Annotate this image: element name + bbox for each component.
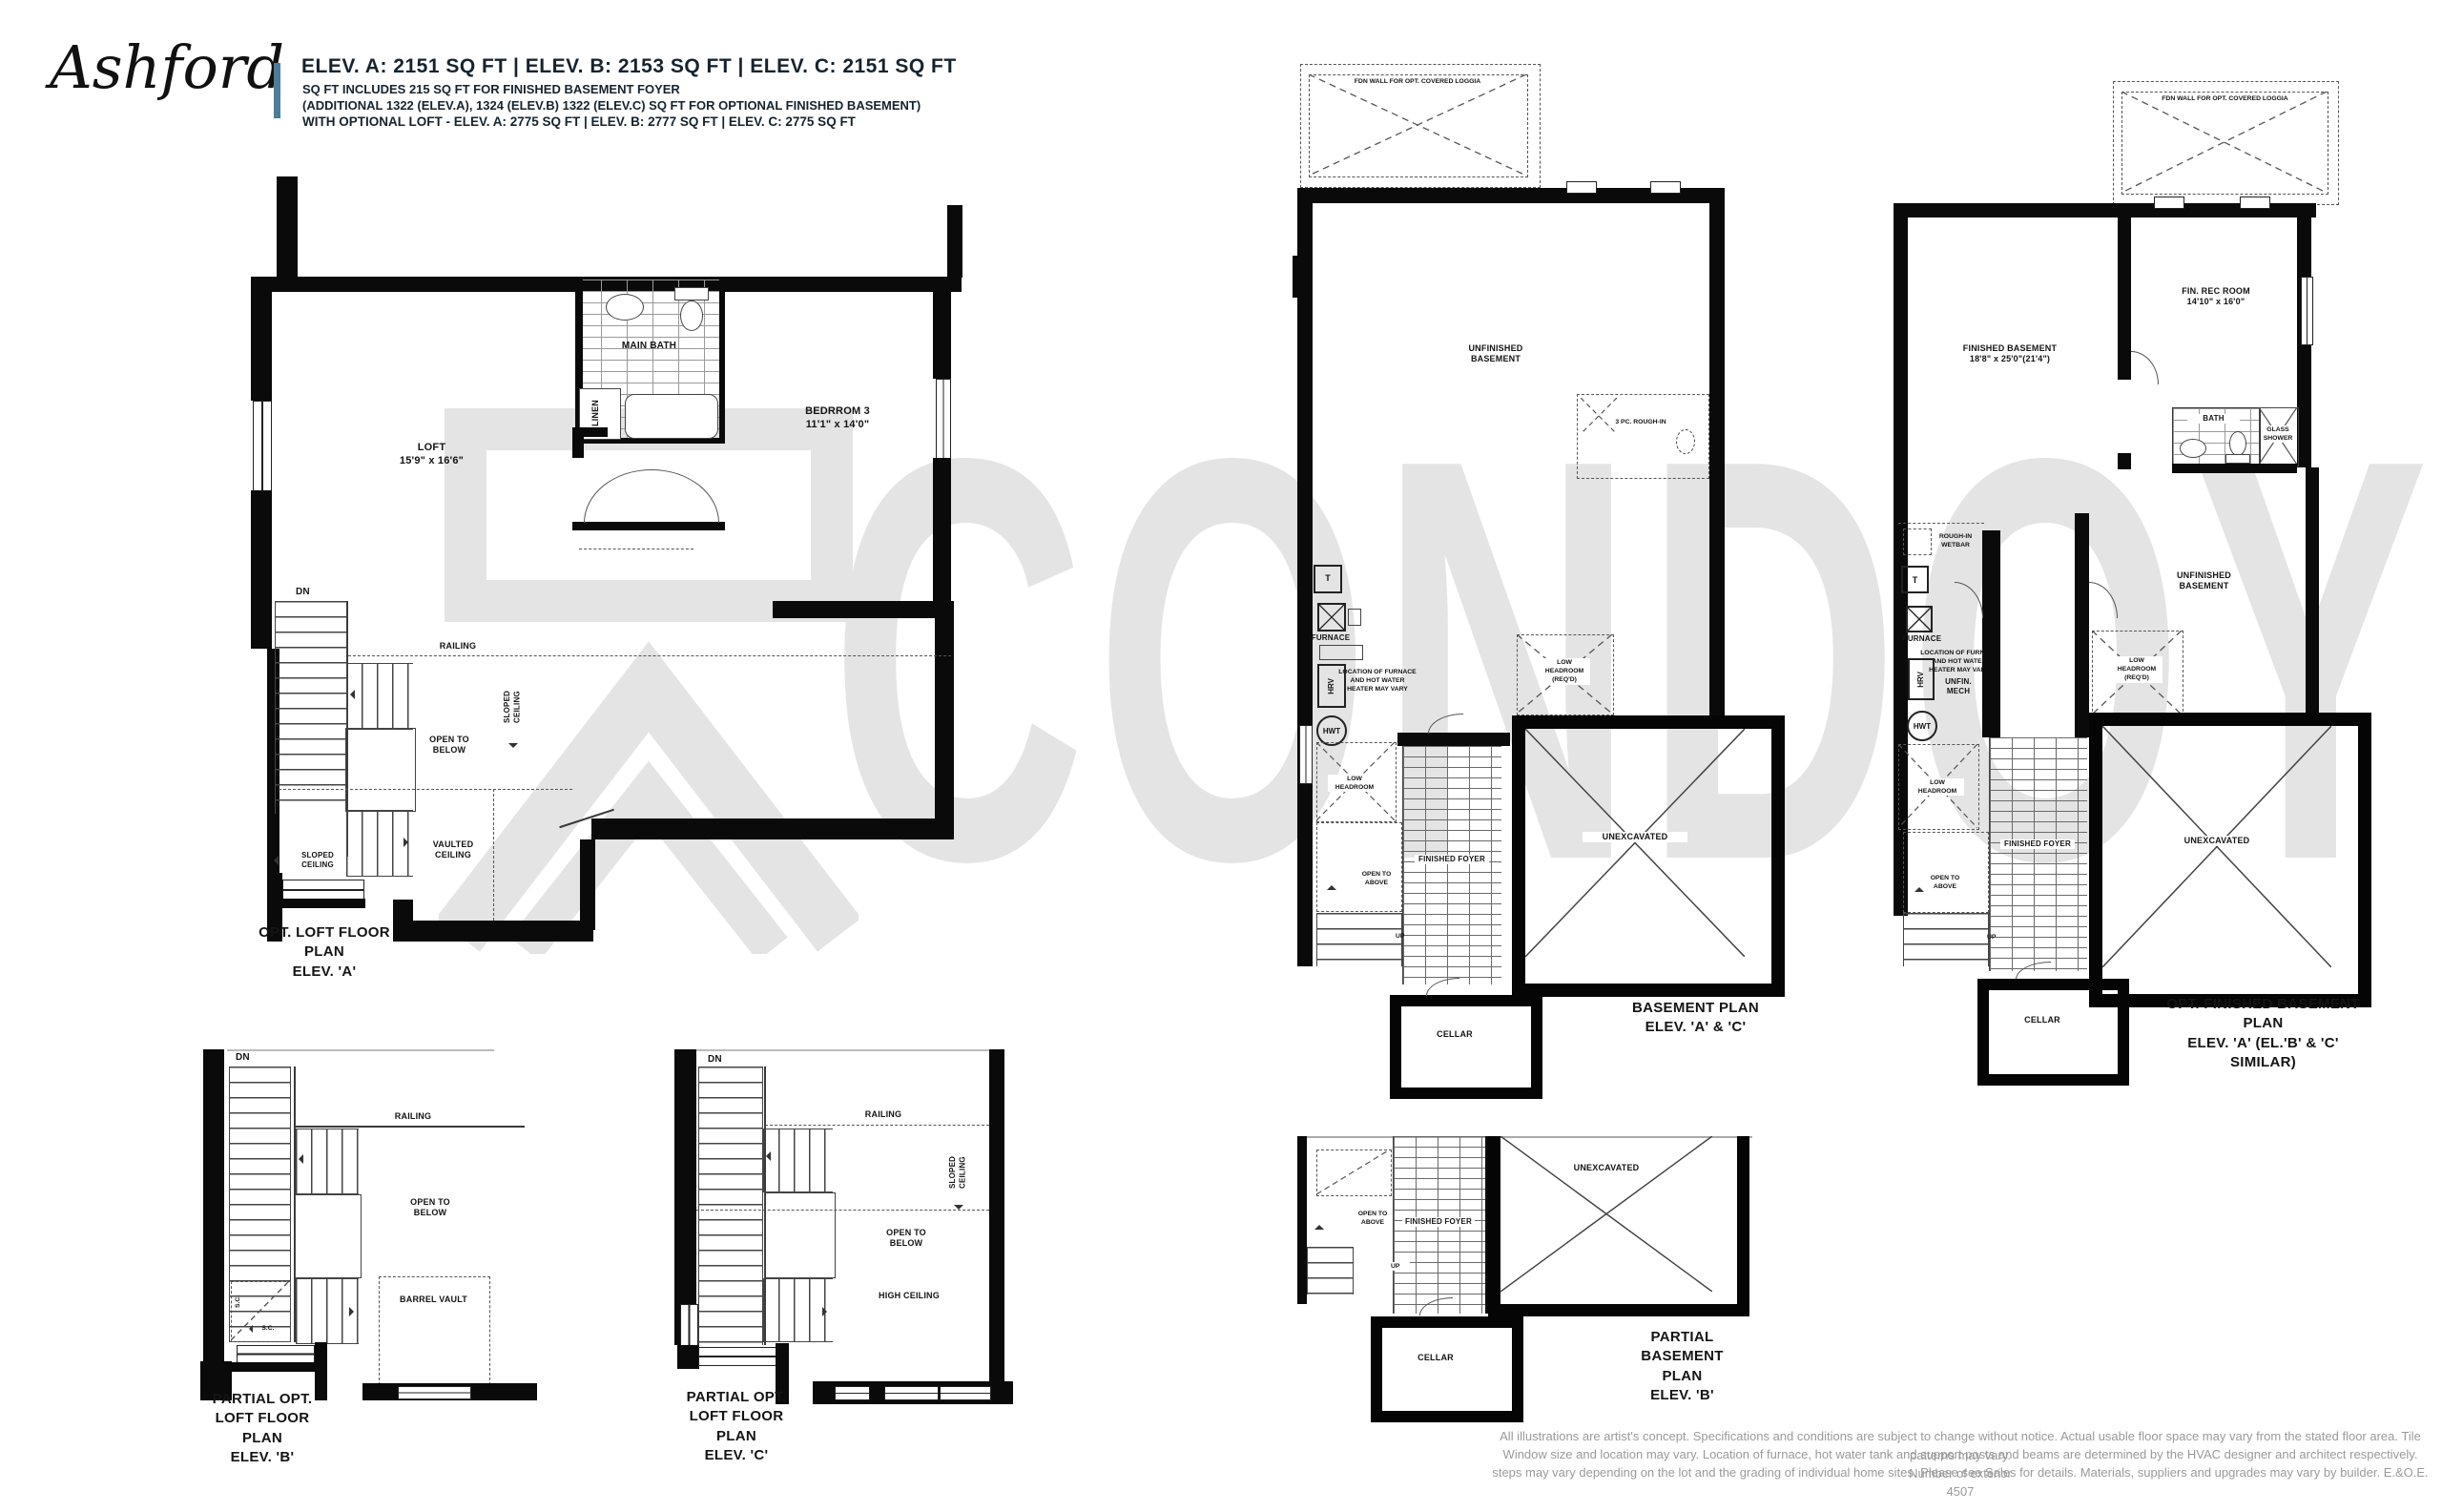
stair-arrow-icon: [766, 1151, 771, 1161]
stair-flight: [1903, 913, 1989, 966]
ceiling-break-line: [696, 1210, 989, 1211]
up-label: UP: [1987, 933, 2006, 942]
up-label: UP: [1396, 932, 1415, 941]
hwt-circle: HWT: [1907, 711, 1937, 741]
stair-flight: [763, 1129, 833, 1192]
bedroom3-name: BEDRROM 3: [805, 405, 870, 417]
header-sqft-line3: (ADDITIONAL 1322 (ELEV.A), 1324 (ELEV.B)…: [302, 98, 921, 113]
sloped-ceiling-v-label: SLOPED CEILING: [503, 674, 524, 739]
caption-line3: ELEV. 'B': [1650, 1387, 1714, 1403]
toilet-tank-icon: [674, 287, 709, 300]
header-sqft-line1: ELEV. A: 2151 SQ FT | ELEV. B: 2153 SQ F…: [301, 55, 957, 78]
wall-segment: [572, 522, 725, 530]
door-arc: [1955, 582, 1983, 618]
wall-segment: [2075, 513, 2089, 737]
wall-segment: [2306, 467, 2319, 713]
sink-icon: [2180, 439, 2206, 458]
loft-name: LOFT: [418, 442, 446, 453]
wall-segment: [933, 458, 951, 615]
wall-segment: [1297, 188, 1313, 966]
cellar-label: CELLAR: [1418, 1029, 1491, 1040]
wall-segment: [2118, 217, 2131, 380]
loft-dims: 15'9" x 16'6": [400, 455, 464, 466]
door-arc: [1428, 714, 1463, 734]
wall-segment: [394, 921, 593, 942]
cut-line: [696, 1049, 989, 1051]
sc-horizontal-label: S.C.: [255, 1324, 281, 1333]
caption-line1: BASEMENT PLAN: [1632, 1000, 1759, 1016]
fin-rec-room-dims: 14'10" x 16'0": [2187, 297, 2245, 306]
plan-caption: OPT. FINISHED BASEMENT PLAN ELEV. 'A' (E…: [2161, 995, 2366, 1072]
loggia-label: FDN WALL FOR OPT. COVERED LOGGIA: [2137, 94, 2313, 103]
unexcavated-label: UNEXCAVATED: [2164, 836, 2269, 846]
furnace-icon: [1906, 606, 1933, 632]
thermostat-label: T: [1325, 573, 1331, 585]
cut-line: [227, 1049, 494, 1051]
hwt-label: HWT: [1323, 727, 1340, 735]
window-sill: [282, 880, 364, 901]
cellar-box: CELLAR: [1371, 1316, 1523, 1422]
unexcavated-x-brace: [1500, 1136, 1712, 1292]
plan-caption: PARTIAL OPT. LOFT FLOOR PLAN ELEV. 'B': [196, 1390, 329, 1467]
railing-label: RAILING: [420, 641, 496, 652]
loggia-x-brace: [2121, 92, 2327, 193]
thermostat-box: T: [1901, 566, 1929, 593]
sloped-arrow-icon: [274, 856, 279, 865]
stair-arrow-icon: [350, 690, 355, 699]
window-sill: [940, 1386, 991, 1400]
wetbar-outline: [1903, 528, 1932, 555]
toilet-rough-icon: [1676, 429, 1695, 454]
wall-segment: [1297, 1136, 1307, 1304]
open-to-above-label: OPEN TO ABOVE: [1356, 870, 1397, 887]
unfinished-basement-label: UNFINISHED BASEMENT: [2159, 570, 2249, 592]
sc-vertical-label: S.C.: [234, 1287, 242, 1315]
builder-logo: Ashford: [50, 32, 284, 102]
open-to-above-label: OPEN TO ABOVE: [1924, 874, 1966, 891]
plan-loft-elev-c: DN RAILING SLOPED CEILING OPEN TO BELOW …: [670, 1045, 1027, 1450]
sloped-ceiling-label: SLOPED CEILING: [948, 1143, 969, 1202]
unexcavated-label: UNEXCAVATED: [1583, 832, 1687, 842]
cellar-label: CELLAR: [1399, 1353, 1472, 1363]
header-sqft-line2: SQ FT INCLUDES 215 SQ FT FOR FINISHED BA…: [302, 82, 680, 96]
sink-icon: [606, 294, 644, 321]
wall-segment: [591, 818, 954, 839]
plan-basement-opt: FDN WALL FOR OPT. COVERED LOGGIA FIN. RE…: [1894, 76, 2380, 1087]
low-headroom-reqd-label: LOW HEADROOM (REQ'D): [1539, 658, 1590, 685]
furnace-pad: [1348, 609, 1361, 626]
wall-segment: [989, 1049, 1004, 1393]
hrv-box: HRV: [1317, 664, 1346, 708]
stair-landing: [764, 1192, 836, 1278]
stair-flight: [698, 1067, 763, 1345]
window: [2301, 277, 2313, 345]
caption-line2: BASEMENT PLAN: [1641, 1348, 1724, 1383]
caption-line1: OPT. FINISHED BASEMENT PLAN: [2166, 996, 2359, 1031]
wall-segment: [947, 205, 962, 278]
furnace-label: FURNACE: [1894, 634, 1951, 644]
open-to-above-label: OPEN TO ABOVE: [1351, 1210, 1395, 1227]
caption-line2: ELEV. 'A' & 'C': [1645, 1019, 1747, 1035]
caption-line2: LOFT FLOOR PLAN: [216, 1410, 310, 1445]
wall-segment: [572, 427, 584, 458]
header-accent-bar: [274, 63, 280, 118]
finished-foyer-floor: [1402, 746, 1501, 984]
wall-segment: [1397, 733, 1510, 746]
wall-segment: [277, 176, 298, 278]
stair-landing: [345, 728, 416, 812]
open-to-below-label: OPEN TO BELOW: [398, 1197, 463, 1219]
finished-foyer-label: FINISHED FOYER: [1402, 1217, 1475, 1227]
unexcavated-x-brace: [1525, 729, 1745, 957]
bath-label: BATH: [2187, 414, 2240, 424]
hrv-label: HRV: [1327, 678, 1336, 694]
wetbar-counter-line: [1898, 523, 1984, 524]
cellar-box: CELLAR: [1977, 979, 2129, 1086]
door-arc: [652, 469, 719, 523]
header-sqft-line4: WITH OPTIONAL LOFT - ELEV. A: 2775 SQ FT…: [302, 114, 856, 129]
unexcavated-box: UNEXCAVATED: [1512, 715, 1785, 997]
sloped-arrow-icon: [508, 743, 518, 748]
caption-line3: ELEV. 'C': [705, 1447, 769, 1463]
window-sill: [2154, 197, 2184, 209]
disclaimer-line-3: steps may vary depending on the lot and …: [1488, 1463, 2432, 1501]
stair-landing: [295, 1194, 362, 1278]
caption-line2: ELEV. 'A': [293, 963, 357, 980]
fin-rec-room-label: FIN. REC ROOM 14'10" x 16'0": [2163, 286, 2268, 308]
thermostat-label: T: [1913, 575, 1918, 585]
loggia-x-brace: [1309, 74, 1526, 176]
fin-rec-room-name: FIN. REC ROOM: [2182, 286, 2250, 296]
rough-in-wetbar-label: ROUGH-IN WETBAR: [1934, 532, 1977, 549]
window-sill: [2240, 197, 2270, 209]
floorplan-sheet: CONDOY Ashford ELEV. A: 2151 SQ FT | ELE…: [0, 0, 2442, 1512]
unexcavated-box: UNEXCAVATED: [2089, 713, 2371, 1007]
plan-loft-elev-a: LINEN MAIN BATH LOFT 15'9" x 16'6" BEDRR…: [243, 176, 978, 973]
dn-label: DN: [296, 587, 334, 599]
caption-line1: PARTIAL OPT.: [687, 1389, 787, 1405]
cellar-label: CELLAR: [2006, 1015, 2079, 1025]
caption-line1: PARTIAL OPT.: [213, 1391, 313, 1407]
wall-segment: [203, 1049, 224, 1367]
loft-label: LOFT 15'9" x 16'6": [377, 442, 486, 468]
furnace-duct: [1319, 645, 1363, 660]
door-arc: [2089, 582, 2118, 618]
dn-label: DN: [236, 1052, 274, 1065]
window-sill: [835, 1386, 870, 1400]
barrel-vault-label: BARREL VAULT: [398, 1295, 469, 1305]
window: [253, 401, 272, 492]
hrv-label: HRV: [1916, 672, 1926, 688]
stair-dashed-region: [1903, 832, 1989, 913]
stair-arrow-icon: [1327, 885, 1336, 890]
plan-basement-ac: FDN WALL FOR OPT. COVERED LOGGIA UNFINIS…: [1293, 57, 1769, 1087]
plan-caption: OPT. LOFT FLOOR PLAN ELEV. 'A': [248, 923, 401, 982]
window-sill: [237, 1345, 315, 1363]
toilet-bowl-icon: [680, 300, 703, 331]
wall-segment: [279, 899, 365, 908]
high-ceiling-label: HIGH CEILING: [877, 1291, 942, 1301]
dn-label: DN: [708, 1054, 746, 1067]
barrel-vault-outline: [379, 1276, 490, 1385]
unexcavated-box: UNEXCAVATED: [1488, 1136, 1749, 1316]
stair-arrow-icon: [299, 1154, 303, 1164]
open-to-below-label: OPEN TO BELOW: [874, 1228, 939, 1250]
caption-line3: ELEV. 'B': [231, 1449, 295, 1465]
hrv-box: HRV: [1908, 658, 1935, 700]
plan-basement-b: OPEN TO ABOVE FINISHED FOYER UP UNEXCAVA…: [1295, 1133, 1831, 1419]
window-sill: [698, 1347, 777, 1366]
stair-flight: [296, 1129, 359, 1194]
railing-label: RAILING: [379, 1111, 447, 1122]
wall-segment: [719, 277, 725, 444]
caption-line1: OPT. LOFT FLOOR PLAN: [259, 924, 390, 960]
stair-arrow-icon: [1314, 1225, 1324, 1230]
window-sill: [398, 1386, 471, 1399]
ceiling-break-line: [493, 789, 494, 921]
wall-segment: [674, 1049, 696, 1345]
finished-basement-dims: 18'8" x 25'0"(21'4"): [1970, 354, 2050, 363]
toilet-tank-icon: [2225, 454, 2250, 464]
window: [936, 379, 951, 460]
sc-arrow-icon: [245, 1325, 253, 1333]
caption-line2: LOFT FLOOR PLAN: [690, 1408, 784, 1443]
plan-caption: PARTIAL OPT. LOFT FLOOR PLAN ELEV. 'C': [670, 1388, 803, 1465]
unfinished-basement-label: UNFINISHED BASEMENT: [1448, 343, 1543, 365]
glass-shower-label: GLASS SHOWER: [2261, 425, 2295, 443]
vaulted-ceiling-label: VAULTED CEILING: [418, 839, 488, 861]
window-sill: [1566, 181, 1597, 194]
cellar-box: CELLAR: [1390, 995, 1542, 1099]
stair-flight: [1307, 1247, 1354, 1295]
low-headroom-reqd-label: LOW HEADROOM (REQ'D): [2111, 656, 2163, 683]
window: [1299, 725, 1313, 784]
railing-label: RAILING: [849, 1109, 918, 1120]
stair-arrow-icon: [349, 1307, 354, 1316]
wall-segment: [1982, 530, 2000, 737]
furnace-note: LOCATION OF FURNACE AND HOT WATER HEATER…: [1338, 668, 1417, 694]
bedroom3-dims: 11'1" x 14'0": [806, 419, 870, 430]
caption-line1: PARTIAL: [1651, 1329, 1714, 1345]
up-label: UP: [1391, 1262, 1410, 1271]
door-arc: [584, 469, 652, 523]
wall-segment: [677, 1345, 699, 1369]
stair-arrow-icon: [822, 1307, 827, 1316]
bathtub-icon: [625, 394, 718, 439]
unexcavated-x-brace: [2102, 726, 2331, 967]
stair-flight: [1316, 913, 1402, 966]
unfin-mech-label: UNFIN. MECH: [1934, 677, 1983, 697]
bedroom3-label: BEDRROM 3 11'1" x 14'0": [776, 405, 900, 432]
thermostat-box: T: [1314, 565, 1342, 593]
railing-line: [296, 1126, 525, 1128]
low-headroom-label: LOW HEADROOM: [1911, 778, 1964, 796]
wall-segment: [251, 277, 272, 401]
stair-arrow-icon: [404, 838, 408, 847]
finished-basement-label: FINISHED BASEMENT 18'8" x 25'0"(21'4"): [1953, 343, 2067, 365]
toilet-bowl-icon: [2229, 431, 2246, 456]
wall-segment: [1709, 188, 1725, 715]
wall-segment: [2118, 453, 2131, 469]
rough-in-label: 3 PC. ROUGH-IN: [1612, 418, 1669, 426]
stair-dashed-x: [1316, 1150, 1390, 1194]
open-to-below-label: OPEN TO BELOW: [417, 735, 482, 756]
wall-segment: [232, 1362, 315, 1372]
finished-foyer-label: FINISHED FOYER: [2000, 839, 2075, 849]
stair-dashed-region: [1316, 822, 1402, 912]
wall-segment: [2172, 464, 2297, 473]
wall-segment: [1293, 256, 1302, 298]
caption-line2: ELEV. 'A' (EL.'B' & 'C' SIMILAR): [2187, 1035, 2339, 1070]
unexcavated-label: UNEXCAVATED: [1556, 1163, 1657, 1173]
window-sill: [1650, 181, 1681, 194]
finished-basement-name: FINISHED BASEMENT: [1963, 343, 2057, 353]
loggia-label: FDN WALL FOR OPT. COVERED LOGGIA: [1327, 77, 1508, 86]
ceiling-break-line: [279, 789, 572, 790]
stair-arrow-icon: [1914, 887, 1924, 892]
low-headroom-label: LOW HEADROOM: [1328, 775, 1381, 792]
wall-segment: [251, 490, 272, 649]
wall-segment: [935, 615, 954, 820]
window-sill: [884, 1386, 939, 1400]
plan-caption: PARTIAL BASEMENT PLAN ELEV. 'B': [1627, 1328, 1737, 1405]
shower-x-brace: [1581, 398, 1617, 434]
door-arc: [2131, 351, 2159, 384]
plan-loft-elev-b: DN RAILING OPEN TO BELOW BARREL VAULT S.…: [196, 1045, 563, 1440]
wall-segment: [580, 839, 595, 930]
ceiling-break-line: [579, 549, 693, 549]
hwt-label: HWT: [1914, 722, 1931, 731]
wall-segment: [933, 277, 951, 379]
furnace-icon: [1317, 603, 1346, 632]
railing-line: [765, 1125, 989, 1126]
furnace-label: FURNACE: [1300, 633, 1361, 643]
sloped-ceiling-h-label: SLOPED CEILING: [286, 851, 349, 871]
window: [680, 1304, 698, 1347]
plan-caption: BASEMENT PLAN ELEV. 'A' & 'C': [1626, 999, 1765, 1038]
stair-flight: [346, 663, 413, 730]
finished-foyer-label: FINISHED FOYER: [1415, 855, 1489, 864]
railing-line: [348, 655, 951, 656]
stair-flight: [275, 601, 347, 814]
wall-segment: [773, 601, 954, 618]
main-bath-label: MAIN BATH: [613, 341, 685, 353]
